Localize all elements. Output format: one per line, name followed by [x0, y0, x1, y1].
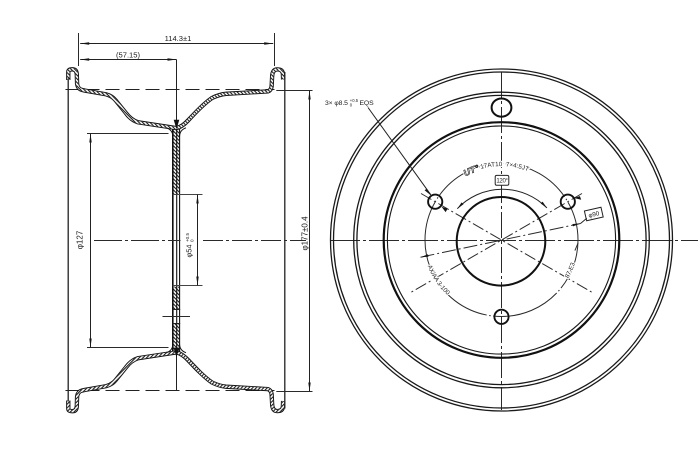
- svg-text:φ177±0.4: φ177±0.4: [301, 216, 310, 251]
- svg-text:120°: 120°: [496, 179, 508, 185]
- svg-text:AX/AA 3-100: AX/AA 3-100: [426, 264, 452, 297]
- svg-text:EQS: EQS: [360, 100, 375, 107]
- svg-text:3× φ8.5: 3× φ8.5: [325, 100, 348, 107]
- svg-text:(57.15): (57.15): [116, 51, 141, 60]
- svg-text:φ127: φ127: [76, 230, 85, 249]
- svg-text:87-E3: 87-E3: [564, 261, 577, 279]
- svg-text:0: 0: [190, 239, 195, 242]
- svg-text:φ54: φ54: [185, 244, 194, 257]
- svg-text:114.3±1: 114.3±1: [165, 34, 192, 43]
- svg-text:0: 0: [350, 102, 353, 107]
